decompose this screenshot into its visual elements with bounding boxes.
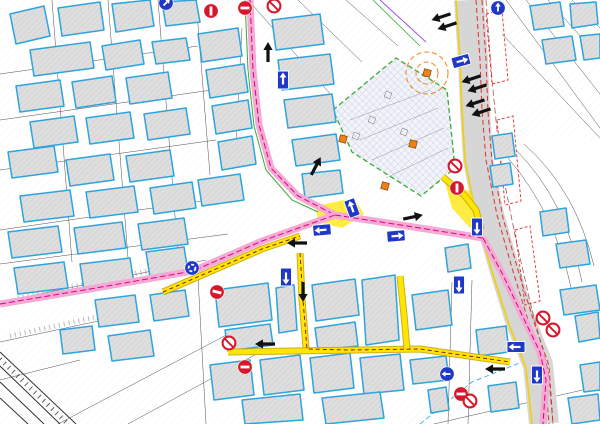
building (360, 354, 404, 394)
one-way-sign (387, 230, 406, 243)
building (476, 326, 509, 356)
building (108, 330, 154, 361)
no-entry-bar (241, 366, 250, 369)
roundabout-sign (185, 261, 199, 275)
building (60, 326, 95, 354)
prohibition-sign (268, 0, 281, 12)
building (218, 136, 256, 170)
building (8, 146, 58, 178)
prohibition-sign (547, 324, 560, 337)
building (445, 244, 471, 272)
building (580, 34, 600, 60)
traffic-plan-map[interactable] (0, 0, 600, 424)
site-marker (409, 140, 418, 149)
one-way-sign (278, 71, 289, 89)
building (138, 218, 188, 250)
no-entry-sign (204, 4, 218, 18)
no-entry-sign (450, 181, 464, 195)
building (568, 394, 600, 424)
building (428, 387, 449, 413)
site-marker (339, 135, 348, 144)
building (542, 36, 576, 64)
building (412, 290, 452, 330)
no-entry-sign (238, 1, 252, 15)
building (556, 240, 590, 268)
building (58, 2, 104, 36)
building (152, 38, 190, 64)
building (260, 355, 304, 395)
building (95, 295, 139, 327)
site-marker (423, 69, 432, 78)
building (8, 226, 62, 258)
building (212, 100, 252, 134)
building (362, 275, 399, 345)
building (86, 186, 138, 218)
one-way-sign (472, 218, 483, 236)
building (102, 40, 144, 70)
building (242, 394, 303, 424)
building (530, 2, 564, 30)
building (570, 2, 598, 28)
building (540, 208, 569, 236)
building (144, 108, 190, 140)
building (66, 154, 114, 186)
building (310, 353, 354, 393)
building (560, 285, 600, 315)
roundabout-icon (185, 261, 199, 275)
building (126, 150, 174, 182)
no-entry-bar (241, 7, 250, 10)
building (276, 285, 297, 333)
map-layers (0, 0, 600, 424)
building (272, 14, 324, 50)
building (322, 392, 384, 424)
mandatory-direction-sign (440, 367, 454, 381)
map-canvas[interactable] (0, 0, 600, 424)
building (302, 170, 343, 198)
one-way-arrow-shaft (392, 236, 399, 237)
no-entry-bar (456, 184, 459, 193)
prohibition-sign (464, 395, 477, 408)
one-way-sign (532, 366, 543, 384)
building (150, 290, 189, 321)
building (20, 190, 74, 222)
no-entry-bar (457, 393, 466, 396)
one-way-sign (454, 276, 465, 294)
building (580, 362, 600, 392)
building (488, 382, 519, 412)
building (30, 116, 78, 148)
site-marker (381, 182, 390, 191)
one-way-sign (281, 268, 292, 286)
prohibition-sign (449, 160, 462, 173)
one-way-sign (507, 342, 525, 353)
no-entry-sign (238, 360, 252, 374)
building (150, 182, 196, 214)
building (575, 312, 600, 342)
building (16, 80, 64, 112)
building (86, 112, 134, 144)
building (74, 222, 126, 254)
building (198, 28, 242, 62)
building (284, 94, 336, 128)
building (198, 174, 244, 206)
building (126, 72, 172, 104)
prohibition-sign (537, 312, 550, 325)
building (14, 262, 68, 294)
one-way-sign (313, 224, 332, 237)
no-entry-bar (210, 7, 213, 16)
building (206, 64, 248, 98)
building (490, 163, 513, 187)
building (312, 279, 359, 321)
mandatory-direction-sign (491, 1, 505, 15)
building (112, 0, 154, 32)
building (72, 76, 116, 108)
prohibition-sign (223, 337, 236, 350)
building (492, 133, 515, 159)
one-way-arrow-shaft (320, 230, 327, 231)
